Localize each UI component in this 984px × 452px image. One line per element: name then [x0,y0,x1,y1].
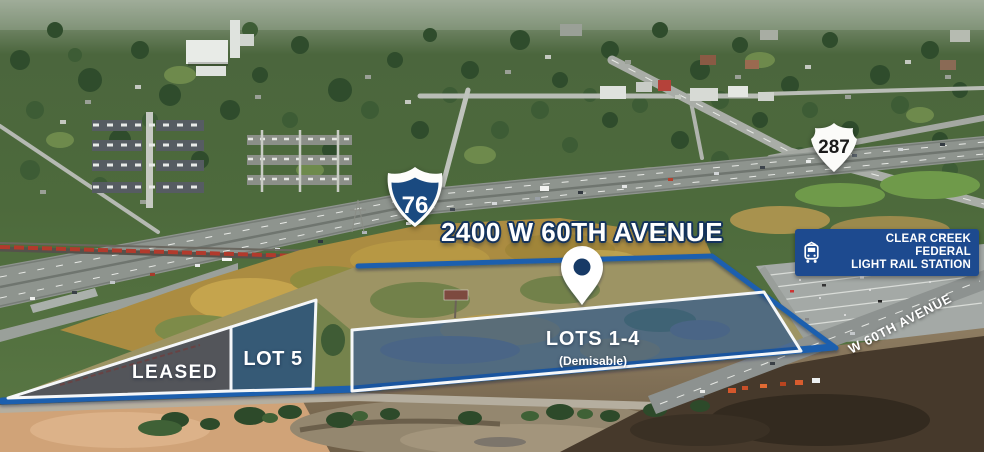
lots-1-4-title: LOTS 1-4 [493,328,693,351]
interstate-76-shield-icon: 76 [386,166,444,228]
us-287-number: 287 [818,137,850,158]
lots-1-4-note: (Demisable) [493,354,693,368]
light-rail-train-icon [801,241,822,265]
aerial-property-marketing-image: 2400 W 60TH AVENUE 76 287 CLEAR CREEK FE… [0,0,984,452]
light-rail-station-label: CLEAR CREEK FEDERAL LIGHT RAIL STATION [795,229,979,276]
station-label-line1: CLEAR CREEK FEDERAL [828,233,971,259]
interstate-76-number: 76 [402,192,429,219]
lots-1-4-label: LOTS 1-4 (Demisable) [493,328,693,368]
station-label-line2: LIGHT RAIL STATION [828,259,971,272]
location-pin-icon [561,246,603,305]
us-287-shield-icon: 287 [803,121,865,175]
lot5-label: LOT 5 [223,348,323,371]
